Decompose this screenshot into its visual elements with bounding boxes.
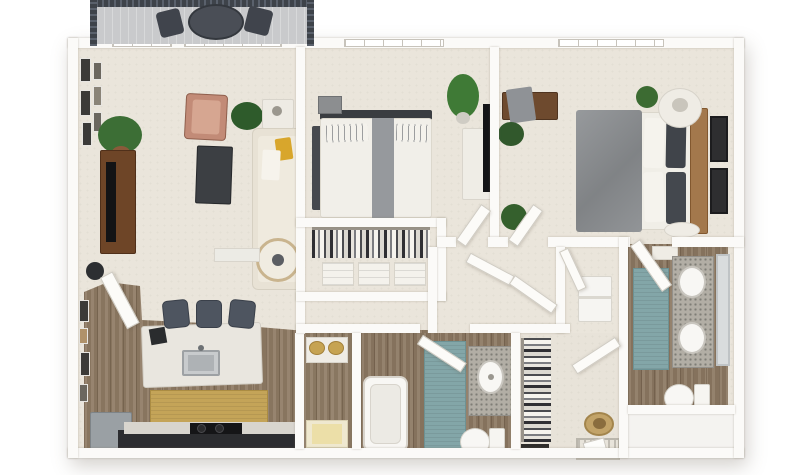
closet1-drawer-unit [358,262,390,286]
bedroom1-pillow [326,123,369,142]
gallery-frame [93,86,102,106]
wall-nook-east [352,333,361,449]
closet1-rail [312,227,430,230]
gallery-frame [80,58,91,82]
master-plant [498,122,524,146]
master-bath-mirror [716,254,730,366]
bar-stool [196,300,222,328]
walkin-rail [521,338,524,442]
wall-closet1-east [437,218,446,301]
bar-stool [228,299,257,330]
patio-table [188,4,244,40]
master-wall-art [710,116,728,162]
wall-outer-bottom [68,448,744,458]
bathroom1-sink-drain [488,374,494,380]
nook-basket [309,341,325,355]
master-bench-blanket [506,86,536,123]
nook-basket [328,341,344,355]
master-pillow-white [643,172,665,223]
closet1-hanging-clothes [312,230,430,258]
bar-stool [162,299,191,330]
side-table-vase [272,106,282,116]
wall-outer-left [68,38,78,458]
master-pillow-white [643,118,665,169]
bedroom1-plant-pot [456,112,470,124]
master-headboard [690,108,708,234]
master-foot-stool [664,222,700,238]
coffee-maker [149,327,168,346]
tv-screen [106,162,116,242]
master-pillow-dark [666,172,686,224]
island-faucet [198,345,204,351]
master-bath-sink [678,266,706,298]
wall-closet1-south [296,292,446,301]
bathroom1-tub-basin [370,384,401,444]
walkin-hat-crown [593,418,606,429]
closet1-drawer-unit [394,262,426,286]
wall-living-bedroom1 [296,47,305,334]
balcony-railing [307,0,314,46]
wall-bath1-closet [511,333,520,449]
sofa-white-pillow [261,150,281,181]
master-nightstand-decor [672,98,688,112]
wall-nook-west [295,333,304,449]
bedroom1-nightstand [318,96,342,114]
gallery-frame [79,384,88,402]
master-plant [636,86,658,108]
laundry-washer-seam [578,296,612,299]
bedroom1-window [344,39,444,47]
wall-south-bedrooms [437,237,456,247]
master-window [558,39,664,47]
gallery-frame [82,122,92,146]
master-wall-art [710,168,728,214]
coffee-table [195,145,233,204]
gallery-frame [80,90,91,116]
wall-south-bedrooms [672,237,744,247]
floor-plan [0,0,800,475]
wall-hall-south [470,324,570,333]
wall-hall-south [296,324,420,333]
gallery-frame [79,328,88,344]
gallery-frame [93,62,102,80]
wall-south-bedrooms [488,237,508,247]
wall-master-bath-west [619,237,628,458]
wall-master-bath-south [628,405,735,414]
wall-hallway-west [428,247,437,333]
closet1-drawer-unit [322,262,354,286]
bedroom1-bed-runner [372,118,394,218]
gallery-frame [80,352,90,376]
ring-chair-cushion [272,254,284,266]
wall-south-bedrooms [548,237,630,247]
wall-closet1-north [296,218,446,227]
nook-cabinet-light [312,424,342,444]
console-bench [214,248,260,262]
bedroom1-pillow [396,123,429,142]
wall-outer-right [734,38,744,458]
master-bath-sink [678,322,706,354]
cooktop-burner [197,424,206,433]
gallery-frame [79,300,89,322]
accent-chair-cushion [191,99,221,134]
island-sink-basin [188,355,214,371]
wall-bedroom1-master [490,47,499,237]
small-plant [231,102,263,130]
master-bed-duvet [576,110,642,232]
cooktop-burner [215,424,224,433]
walkin-hanging-clothes [523,338,551,442]
storage-room-floor [628,414,735,450]
balcony-railing [90,0,97,46]
